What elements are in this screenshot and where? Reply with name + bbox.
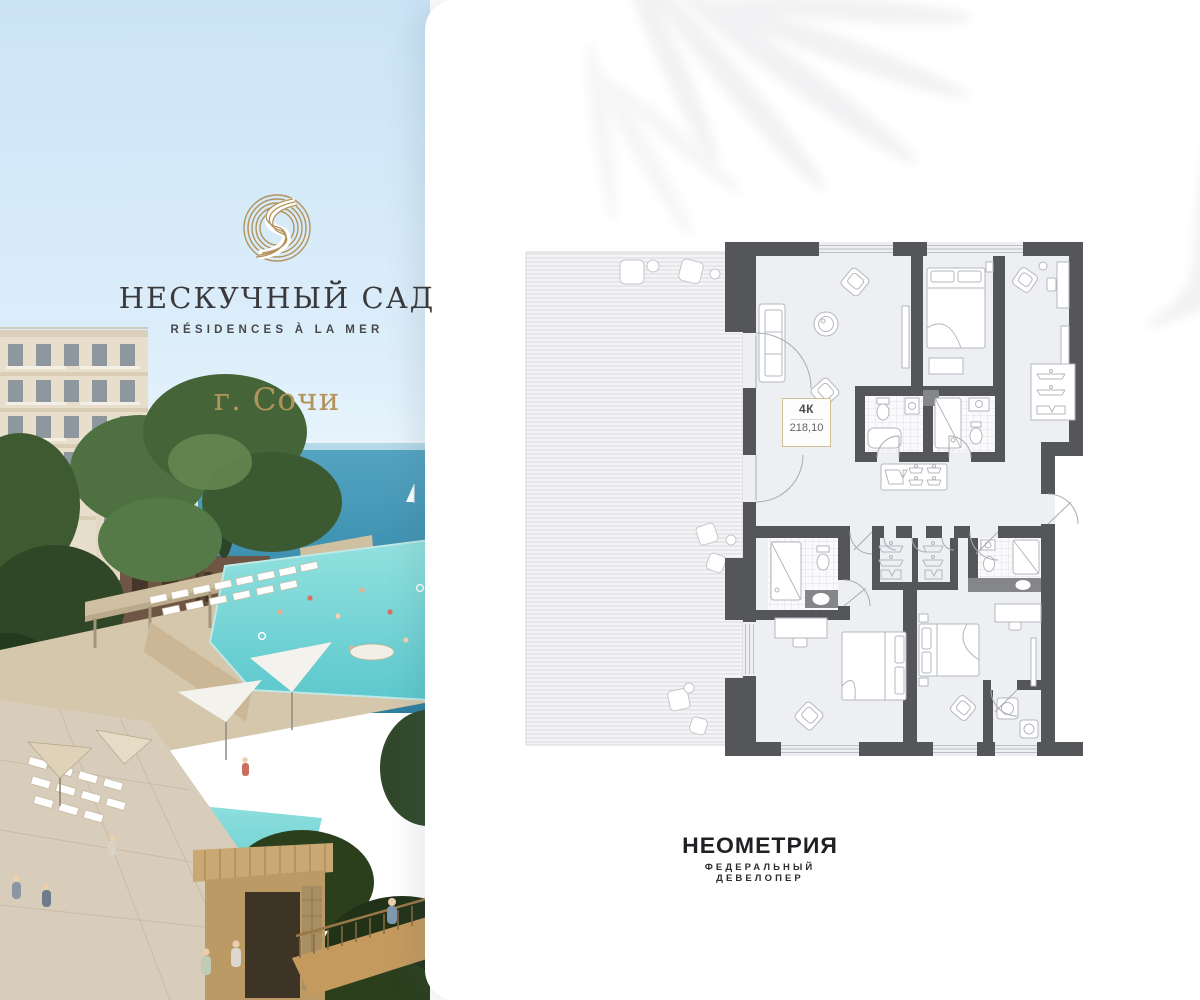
unit-label: 4К 218,10 <box>782 398 831 447</box>
project-title: НЕСКУЧНЫЙ САД <box>77 281 477 315</box>
nightstand-icon <box>986 262 993 272</box>
floor-plan <box>525 240 1095 760</box>
toilet-icon <box>817 554 829 570</box>
city-label: г. Сочи <box>77 382 477 418</box>
terrace <box>526 252 743 745</box>
bridge-person <box>387 898 397 924</box>
developer-name: НЕОМЕТРИЯ <box>660 832 860 858</box>
desk-icon <box>775 618 827 638</box>
brand-block: НЕСКУЧНЫЙ САД RÉSIDENCES À LA MER г. Соч… <box>77 192 477 418</box>
spiral-monogram-icon <box>241 192 313 264</box>
project-subtitle: RÉSIDENCES À LA MER <box>77 324 477 336</box>
nightstand-icon <box>919 614 928 622</box>
toilet-icon <box>970 428 982 444</box>
tv-console-icon <box>902 306 909 368</box>
wardrobe-icon <box>1031 364 1075 420</box>
bathtub-icon <box>868 428 901 448</box>
developer-logo: НЕОМЕТРИЯ ФЕДЕРАЛЬНЫЙ ДЕВЕЛОПЕР <box>660 832 860 884</box>
toilet-icon <box>877 398 889 404</box>
nightstand-icon <box>919 678 928 686</box>
side-table-icon <box>1039 262 1047 270</box>
flyer-page: НЕСКУЧНЫЙ САД RÉSIDENCES À LA MER г. Соч… <box>0 0 1200 1000</box>
mirror-icon <box>1031 638 1036 686</box>
resort-photo-scene <box>0 0 430 1000</box>
sink-icon <box>813 594 829 605</box>
unit-area: 218,10 <box>783 422 830 434</box>
dresser-icon <box>929 358 963 374</box>
resort-photo <box>0 0 430 1000</box>
floor-plan-drawing <box>525 240 1095 760</box>
desk-icon <box>1057 262 1069 308</box>
desk-icon <box>995 604 1041 622</box>
unit-type: 4К <box>783 402 830 416</box>
unit-label-divider <box>790 419 823 420</box>
developer-tagline: ФЕДЕРАЛЬНЫЙ ДЕВЕЛОПЕР <box>660 862 860 884</box>
